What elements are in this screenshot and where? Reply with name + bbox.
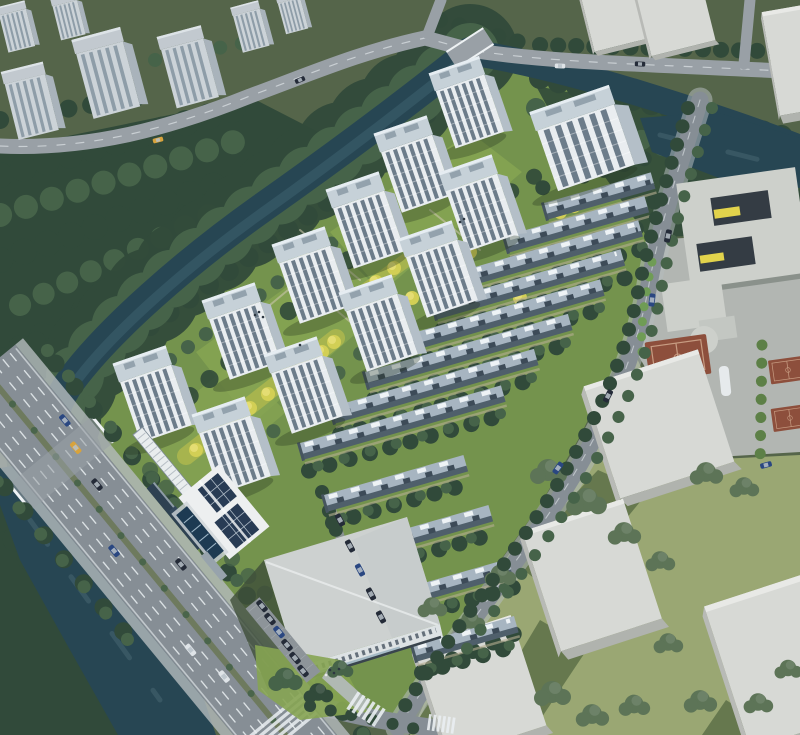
school-main-building [676, 167, 800, 289]
aerial-masterplan-rendering [0, 0, 800, 735]
render-canvas [0, 0, 800, 735]
